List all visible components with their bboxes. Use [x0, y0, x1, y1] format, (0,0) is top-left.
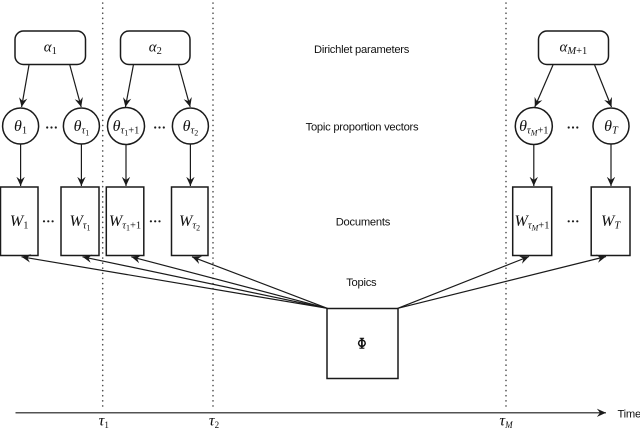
svg-text:Documents: Documents — [336, 216, 391, 228]
svg-text:Topics: Topics — [346, 277, 377, 289]
svg-text:Time: Time — [618, 408, 640, 420]
svg-text:Dirichlet parameters: Dirichlet parameters — [314, 44, 410, 56]
svg-text:Topic proportion vectors: Topic proportion vectors — [306, 122, 419, 134]
